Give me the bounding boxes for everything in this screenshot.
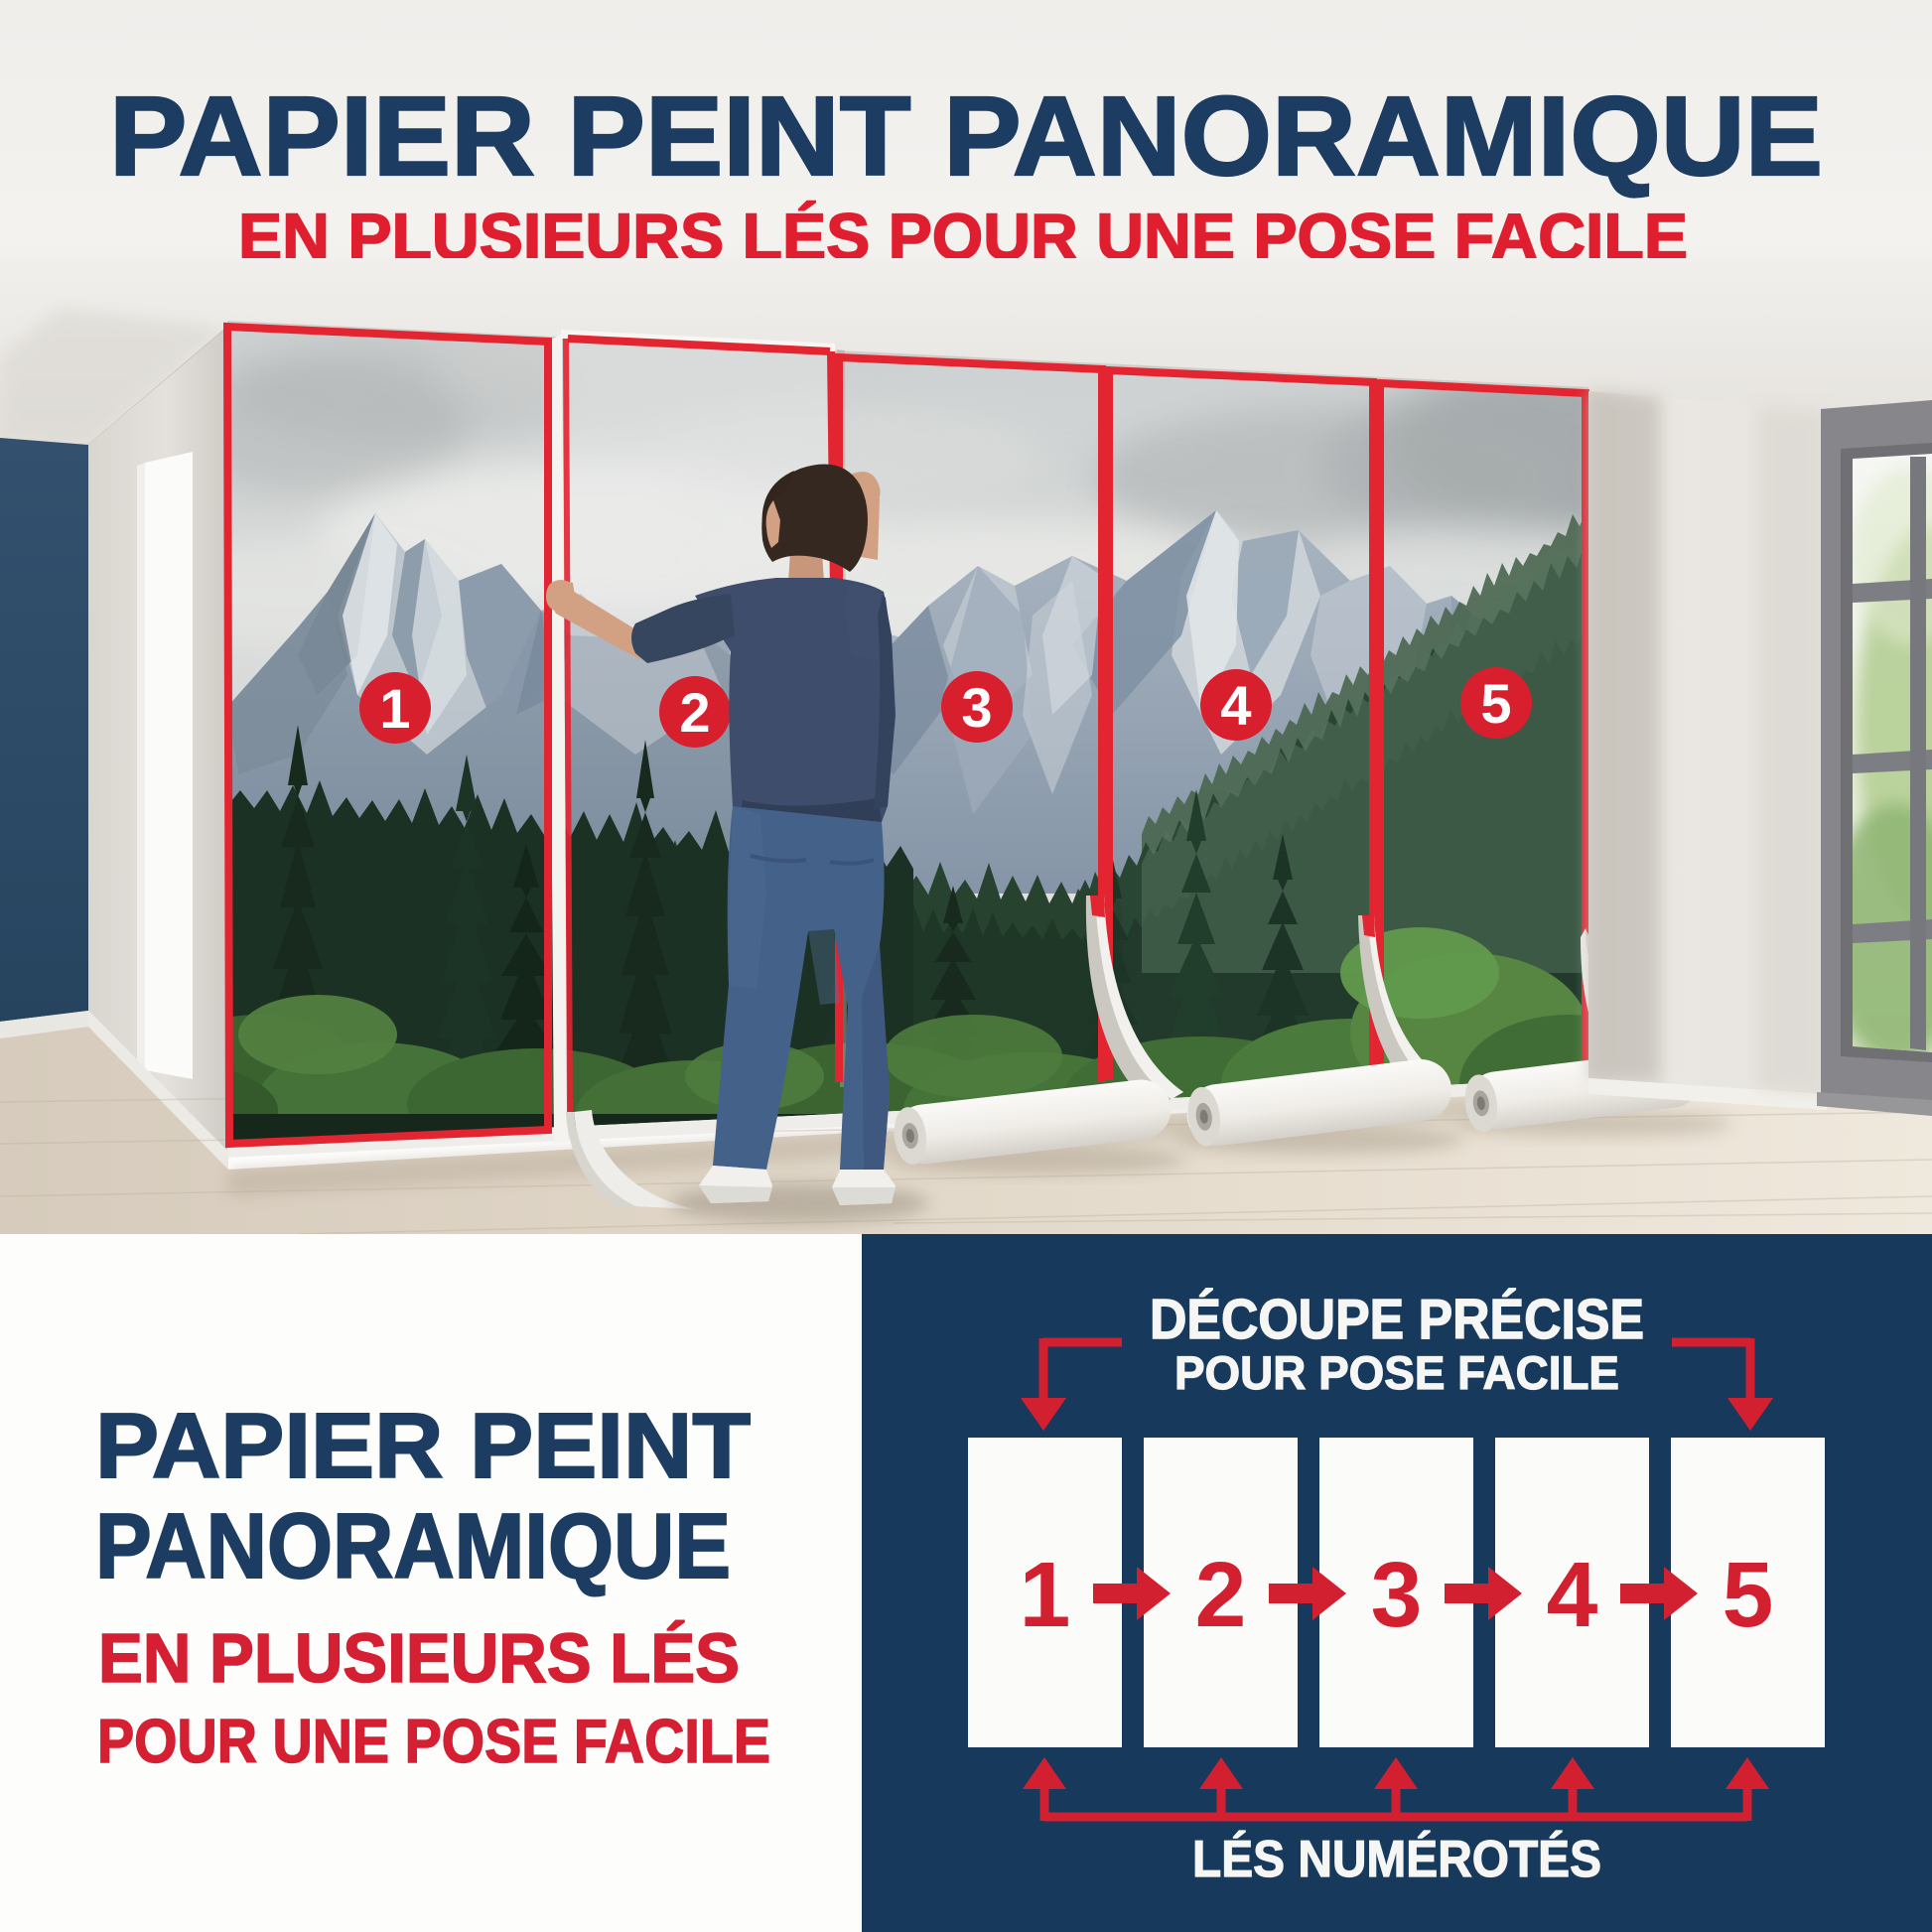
svg-text:LÉS NUMÉROTÉS: LÉS NUMÉROTÉS [1192, 1831, 1601, 1888]
svg-text:3: 3 [1371, 1543, 1423, 1646]
svg-text:PAPIER PEINT PANORAMIQUE: PAPIER PEINT PANORAMIQUE [109, 73, 1823, 199]
svg-text:POUR UNE POSE FACILE: POUR UNE POSE FACILE [97, 1708, 770, 1776]
svg-text:DÉCOUPE PRÉCISE: DÉCOUPE PRÉCISE [1150, 1288, 1644, 1351]
svg-text:1: 1 [1020, 1543, 1071, 1646]
svg-text:1: 1 [379, 677, 410, 740]
svg-text:5: 5 [1723, 1543, 1774, 1646]
svg-text:4: 4 [1547, 1543, 1598, 1646]
svg-text:3: 3 [961, 676, 992, 739]
svg-text:5: 5 [1480, 672, 1511, 735]
svg-text:EN PLUSIEURS LÉS: EN PLUSIEURS LÉS [98, 1619, 740, 1697]
svg-text:PAPIER PEINT: PAPIER PEINT [95, 1394, 751, 1497]
svg-text:2: 2 [1195, 1543, 1247, 1646]
svg-text:PANORAMIQUE: PANORAMIQUE [95, 1494, 731, 1597]
svg-text:4: 4 [1220, 674, 1251, 737]
svg-text:2: 2 [679, 681, 710, 744]
svg-text:POUR POSE FACILE: POUR POSE FACILE [1174, 1346, 1619, 1399]
